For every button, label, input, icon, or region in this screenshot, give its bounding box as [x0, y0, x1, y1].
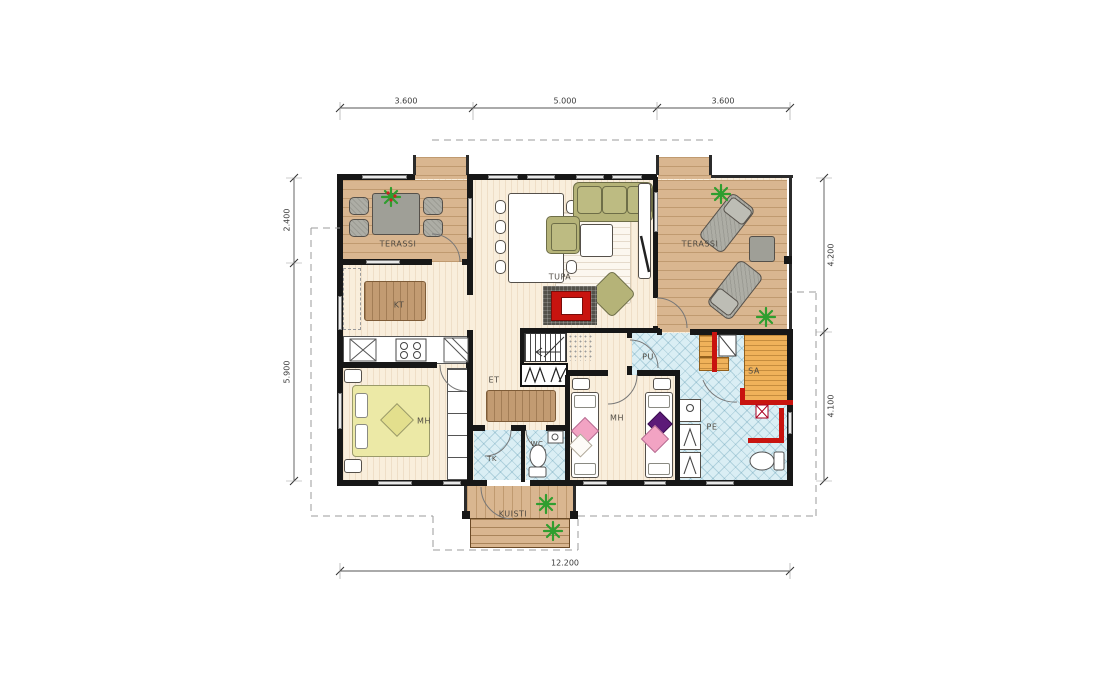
room-label-kt: KT	[394, 301, 405, 310]
door-arcs	[432, 234, 737, 519]
room-label-sa: SA	[748, 367, 760, 376]
plant-icon	[382, 188, 400, 206]
room-label-tk: TK	[487, 455, 497, 463]
dim-top-1: 3.600	[395, 97, 418, 106]
room-label-kuisti: KUISTI	[499, 510, 528, 519]
dim-top-2: 5.000	[554, 97, 577, 106]
dim-right-1: 4.200	[827, 244, 836, 267]
room-label-et: ET	[489, 376, 500, 385]
dim-top-3: 3.600	[712, 97, 735, 106]
fridge-icon	[444, 338, 468, 362]
room-label-wc: WC	[531, 440, 544, 448]
dim-right-2: 4.100	[827, 395, 836, 418]
dim-left-2: 5.900	[283, 361, 292, 384]
coat-rack-icon	[525, 368, 566, 382]
stove-icon	[396, 339, 426, 361]
toilet-icon	[529, 431, 563, 477]
kiuas-icon	[756, 405, 768, 418]
room-label-terassi-right: TERASSI	[682, 240, 719, 249]
room-label-tupa: TUPA	[549, 273, 572, 282]
plant-icon	[712, 185, 730, 203]
kitchen-sink-icon	[350, 339, 376, 361]
washer-symbols	[684, 405, 696, 475]
room-label-pe: PE	[707, 423, 718, 432]
room-label-terassi-left: TERASSI	[380, 240, 417, 249]
room-label-mh-right: MH	[610, 414, 624, 423]
tv-icon	[641, 236, 649, 272]
plant-icon	[537, 495, 555, 513]
room-label-pu: PU	[642, 353, 654, 362]
plan-symbol-overlay	[0, 0, 1100, 680]
sauna-heater-icon	[719, 335, 736, 356]
room-label-mh-left: MH	[417, 417, 431, 426]
floor-plan: TERASSI TERASSI TUPA KT ET MH MH TK WC P…	[0, 0, 1100, 680]
dim-left-1: 2.400	[283, 209, 292, 232]
dim-bottom: 12.200	[551, 559, 579, 568]
plant-icon	[544, 522, 562, 540]
stair-arrow-icon	[536, 337, 564, 357]
pe-toilet-icon	[750, 452, 784, 470]
plant-icon	[757, 308, 775, 326]
